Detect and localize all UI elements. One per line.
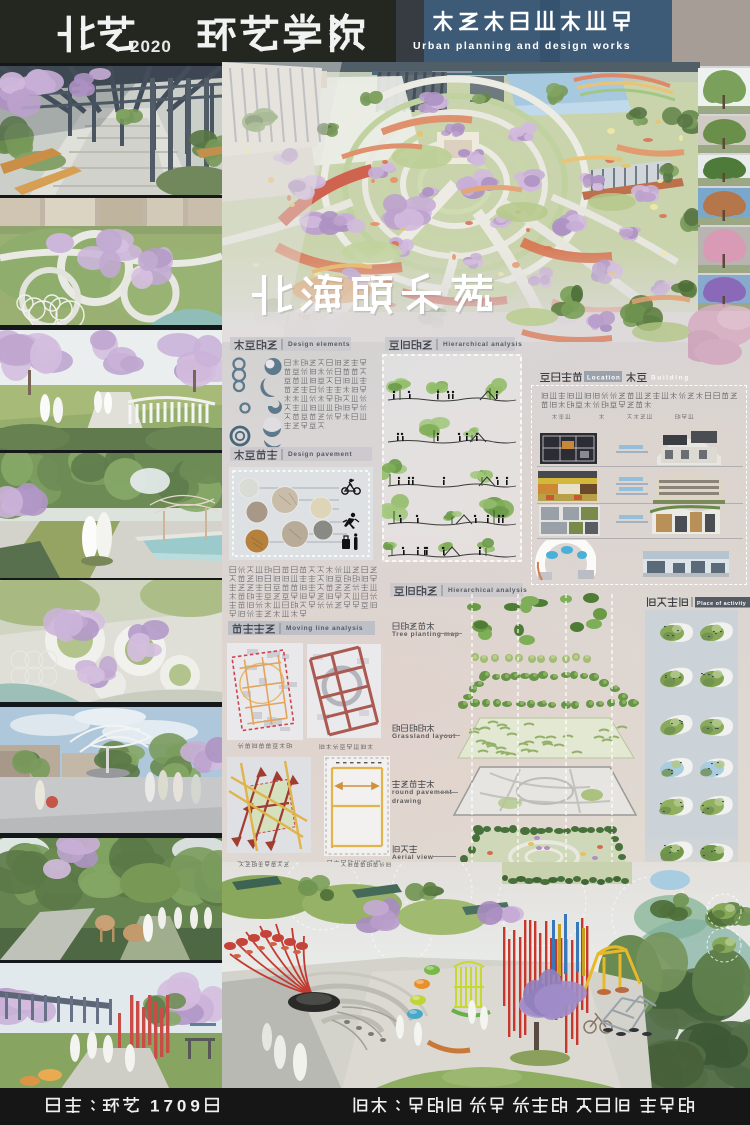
svg-text:2020: 2020 [130, 37, 172, 56]
svg-text:Location: Location [587, 375, 621, 382]
svg-text:Place of activity: Place of activity [697, 601, 746, 607]
svg-text:Building: Building [651, 375, 690, 382]
svg-text:1709: 1709 [150, 1097, 204, 1116]
